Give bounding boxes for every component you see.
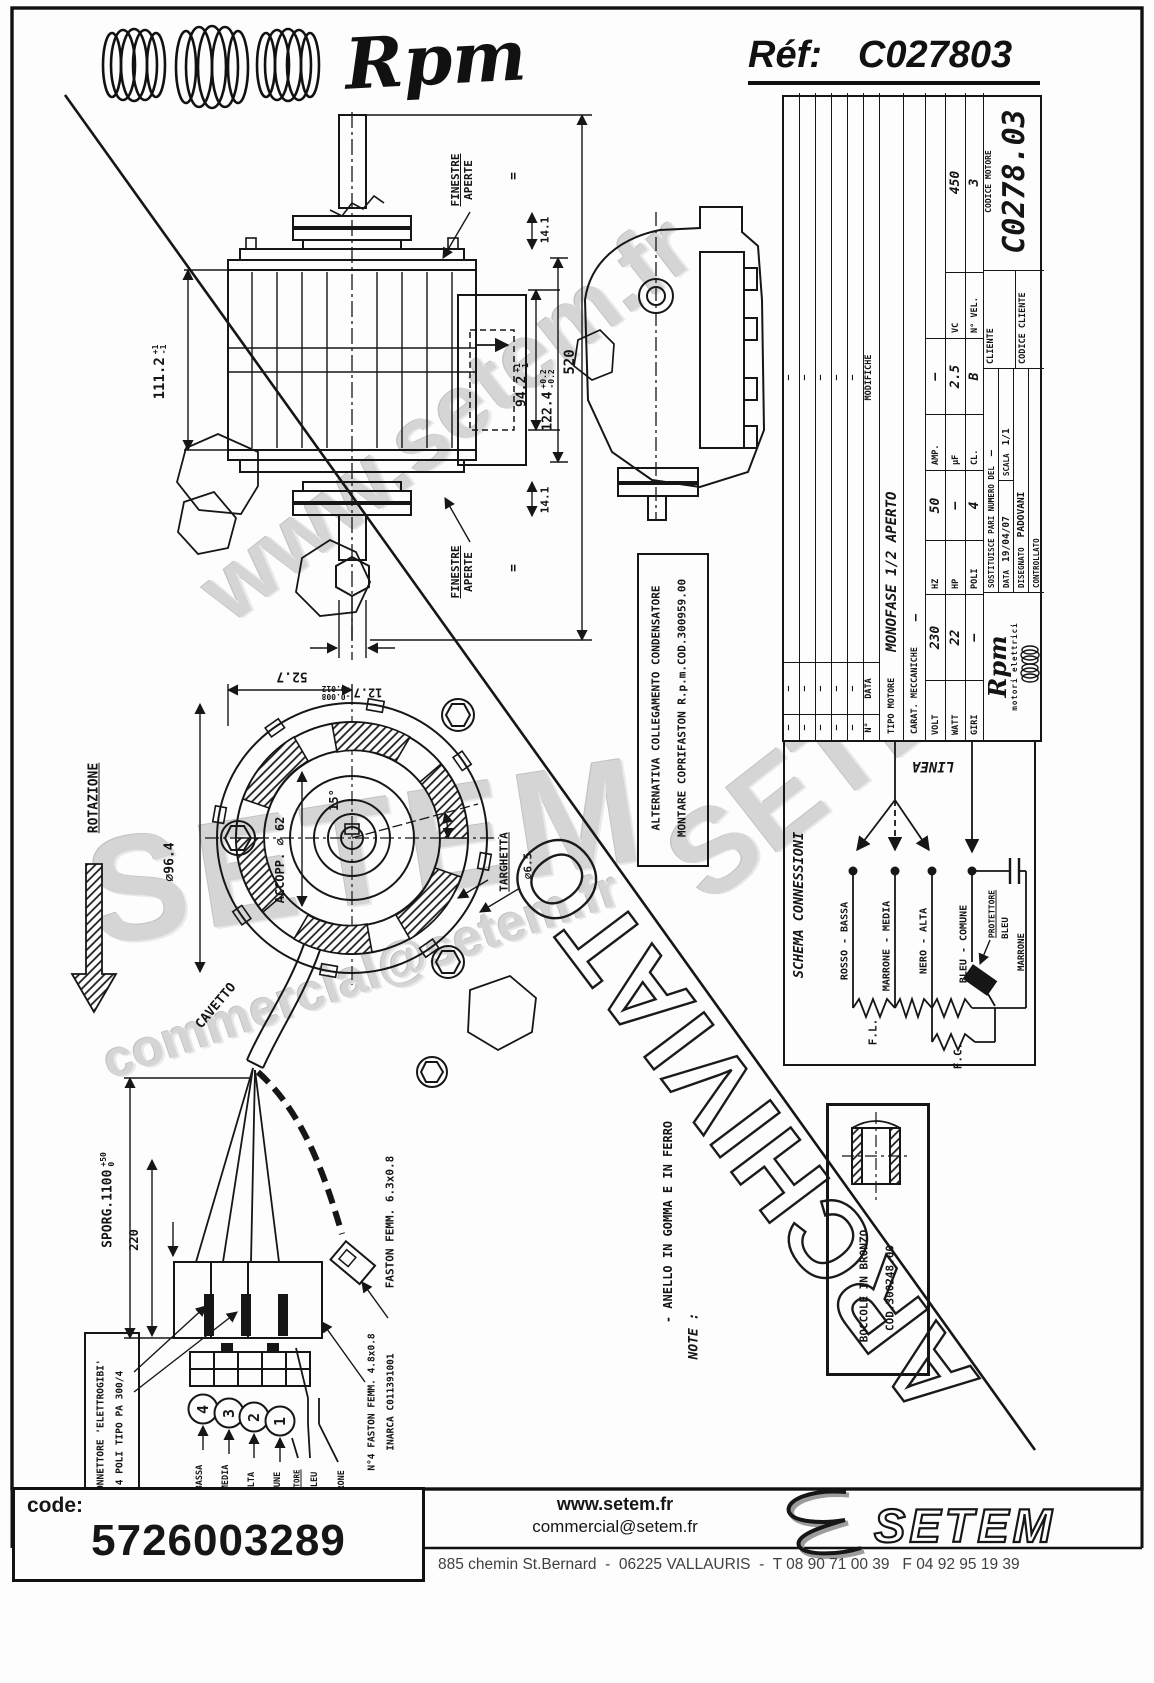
code-box: code: 5726003289 bbox=[12, 1487, 425, 1582]
hz-value: 50 bbox=[926, 470, 946, 540]
carat-value: – bbox=[908, 614, 922, 621]
mod-cell: – bbox=[848, 662, 864, 714]
mod-cell: – bbox=[848, 714, 864, 740]
volt-value: 230 bbox=[926, 594, 946, 680]
mod-cell: – bbox=[832, 93, 848, 662]
footer-email[interactable]: commercial@setem.fr bbox=[470, 1517, 760, 1537]
motor-front-view bbox=[72, 684, 536, 1284]
mod-cell: – bbox=[816, 662, 832, 714]
targhetta-label: TARGHETTA bbox=[498, 832, 511, 892]
finestre-aperte-top: FINESTREAPERTE bbox=[449, 154, 475, 207]
hp-value: – bbox=[946, 470, 966, 540]
dim-outer-diameter: ∅96.4 bbox=[163, 842, 178, 881]
titleblock-logo-sub: motori elettrici bbox=[1010, 593, 1019, 740]
giri-value: – bbox=[966, 594, 984, 680]
mod-cell: – bbox=[832, 662, 848, 714]
sostituisce-label: SOSTITUISCE PARI NUMERO DEL bbox=[987, 466, 996, 588]
mod-cell: – bbox=[800, 93, 816, 662]
vc-value: 450 bbox=[946, 93, 966, 272]
codice-motore-label: CODICE MOTORE bbox=[984, 93, 993, 270]
amp-label: AMP. bbox=[926, 414, 946, 470]
mod-cell: – bbox=[832, 714, 848, 740]
code-label: code: bbox=[27, 1494, 422, 1518]
data-value: 19/04/07 bbox=[1001, 516, 1012, 562]
mod-cell: – bbox=[848, 93, 864, 662]
disegnato-value: PADOVANI bbox=[1016, 492, 1027, 538]
controllato-label: CONTROLLATO bbox=[1032, 538, 1041, 588]
uf-value: 2.5 bbox=[946, 338, 966, 414]
cl-label: CL. bbox=[966, 414, 984, 470]
scala-label: SCALA bbox=[1002, 453, 1011, 476]
dim-52-7: 52.7 bbox=[276, 669, 307, 684]
scala-value: 1/1 bbox=[1001, 428, 1012, 445]
connettore-line2: 4 POLI TIPO PA 300/4 bbox=[115, 1371, 126, 1485]
mod-cell: – bbox=[800, 714, 816, 740]
dim-total-length: 111.2+1-1 bbox=[152, 345, 168, 400]
alternativa-line2: MONTARE COPRIFASTON R.p.m.COD.300959.00 bbox=[676, 579, 689, 837]
note-title: NOTE : bbox=[687, 1313, 702, 1360]
watt-label: WATT bbox=[946, 680, 966, 740]
schema-fc: F.C. bbox=[952, 1043, 965, 1070]
mod-cell: – bbox=[816, 714, 832, 740]
carat-label: CARAT. MECCANICHE bbox=[910, 647, 920, 734]
boccole-line1: BOCCOLE IN BRONZO bbox=[858, 1230, 871, 1343]
cl-value: B bbox=[966, 338, 984, 414]
hz-label: HZ bbox=[926, 540, 946, 594]
equals-top: = bbox=[507, 172, 522, 180]
dim-angle-15: 15° bbox=[327, 789, 341, 811]
finestre-aperte-bottom: FINESTREAPERTE bbox=[449, 546, 475, 599]
rpm-logo-coils bbox=[103, 26, 319, 108]
schema-wire3: NERO - ALTA bbox=[919, 908, 930, 974]
dim-220: 220 bbox=[127, 1229, 141, 1251]
faston-63-label: FASTON FEMM. 6.3x0.8 bbox=[384, 1156, 397, 1288]
tipo-motore-value: MONOFASE 1/2 APERTO bbox=[884, 492, 900, 652]
faston4-line2: INARCA C011391001 bbox=[386, 1353, 397, 1450]
mod-cell: – bbox=[784, 93, 800, 662]
alternativa-box bbox=[637, 553, 709, 867]
drawing-sheet: www.setem.fr SETEM SETEM commercial@sete… bbox=[0, 0, 1154, 1683]
titleblock-logo-text: Rpm bbox=[986, 593, 1010, 740]
titleblock-logo-cell: Rpm motori elettrici bbox=[984, 592, 1044, 740]
schema-wire1: ROSSO - BASSA bbox=[840, 902, 851, 980]
boccole-line2: COD.300248.00 bbox=[884, 1245, 897, 1331]
mod-cell: – bbox=[784, 662, 800, 714]
cliente-cell: CLIENTE bbox=[984, 270, 1016, 368]
codice-motore-value: C0278.03 bbox=[997, 93, 1032, 270]
schema-fl: F.L. bbox=[867, 1019, 880, 1046]
dim-14-top: 14.1 bbox=[539, 217, 552, 244]
code-value: 5726003289 bbox=[15, 1516, 422, 1566]
reference-label: Réf: bbox=[748, 34, 822, 77]
pin-1: 1 bbox=[265, 1406, 296, 1437]
schema-marrone: MARRONE bbox=[1017, 933, 1027, 971]
dim-window: 94.2+1-1 bbox=[514, 363, 530, 407]
rotazione-label: ROTAZIONE bbox=[87, 763, 102, 833]
nvel-value: 3 bbox=[966, 93, 984, 272]
footer-site[interactable]: www.setem.fr bbox=[470, 1494, 760, 1515]
dim-body: 122.4+0.2-0.2 bbox=[540, 369, 556, 430]
motor-bracket-view bbox=[574, 207, 764, 520]
amp-value: – bbox=[926, 338, 946, 414]
dim-shaft-diameter: 12.7-0.008-0.012 bbox=[322, 684, 383, 700]
vc-label: VC bbox=[946, 272, 966, 338]
poli-label: POLI bbox=[966, 540, 984, 594]
mod-col-num: N° bbox=[864, 714, 880, 740]
hp-label: HP bbox=[946, 540, 966, 594]
dim-accopp: ACCOPP. ∅ 62 bbox=[273, 817, 287, 904]
uf-label: µF bbox=[946, 414, 966, 470]
mod-cell: – bbox=[816, 93, 832, 662]
tipo-motore-label: TIPO MOTORE bbox=[887, 678, 897, 734]
poli-value: 4 bbox=[966, 470, 984, 540]
svg-text:SETEM: SETEM bbox=[874, 1499, 1056, 1552]
data-label: DATA bbox=[1002, 570, 1011, 588]
nvel-label: N° VEL. bbox=[966, 272, 984, 338]
reference-value: C027803 bbox=[858, 34, 1012, 77]
disegnato-label: DISEGNATO bbox=[1017, 547, 1026, 588]
schema-wire2: MARRONE - MEDIA bbox=[882, 901, 893, 991]
mod-cell: – bbox=[800, 662, 816, 714]
schema-wire4: BLEU - COMUNE bbox=[959, 905, 970, 983]
equals-bottom: = bbox=[507, 564, 522, 572]
linea-label: LINEA bbox=[912, 758, 954, 774]
faston4-line1: N°4 FASTON FEMM. 4.8x0.8 bbox=[367, 1333, 378, 1470]
dim-hole: ∅6.5 bbox=[522, 853, 535, 880]
schema-title: SCHEMA CONNESSIONI bbox=[791, 832, 807, 978]
codice-cliente-cell: CODICE CLIENTE bbox=[1016, 270, 1044, 368]
sostituisce-value: – bbox=[986, 450, 997, 456]
alternativa-line1: ALTERNATIVA COLLEGAMENTO CONDENSATORE bbox=[650, 585, 663, 830]
titleblock-logo-coils bbox=[1019, 638, 1041, 696]
connettore-line1: CONNETTORE 'ELETTROGIBI' bbox=[96, 1359, 107, 1496]
schema-box bbox=[783, 740, 1036, 1066]
giri-label: GIRI bbox=[966, 680, 984, 740]
note-line1: - ANELLO IN GOMMA E IN FERRO bbox=[661, 1121, 675, 1323]
title-block: – – – – – – – – – – – – – – – N° DATA MO… bbox=[782, 95, 1042, 742]
schema-protettore: PROTETTORE bbox=[988, 890, 997, 938]
footer-address: 885 chemin St.Bernard - 06225 VALLAURIS … bbox=[438, 1556, 1138, 1574]
mod-cell: – bbox=[784, 714, 800, 740]
rpm-logo-text: Rpm bbox=[343, 13, 528, 105]
setem-logo: SETEM bbox=[789, 1492, 1056, 1557]
dim-14-bottom: 14.1 bbox=[539, 487, 552, 514]
dim-sporgenza: SPORG.1100+500 bbox=[100, 1152, 116, 1248]
schema-bleu: BLEU bbox=[1001, 917, 1011, 939]
dim-overall-520: 520 bbox=[562, 349, 578, 374]
mod-col-data: DATA bbox=[864, 662, 880, 714]
watt-value: 22 bbox=[946, 594, 966, 680]
mod-col-modifiche: MODIFICHE bbox=[864, 93, 880, 662]
boccole-box bbox=[826, 1103, 930, 1376]
reference-block: Réf: C027803 bbox=[748, 34, 1040, 85]
volt-label: VOLT bbox=[926, 680, 946, 740]
